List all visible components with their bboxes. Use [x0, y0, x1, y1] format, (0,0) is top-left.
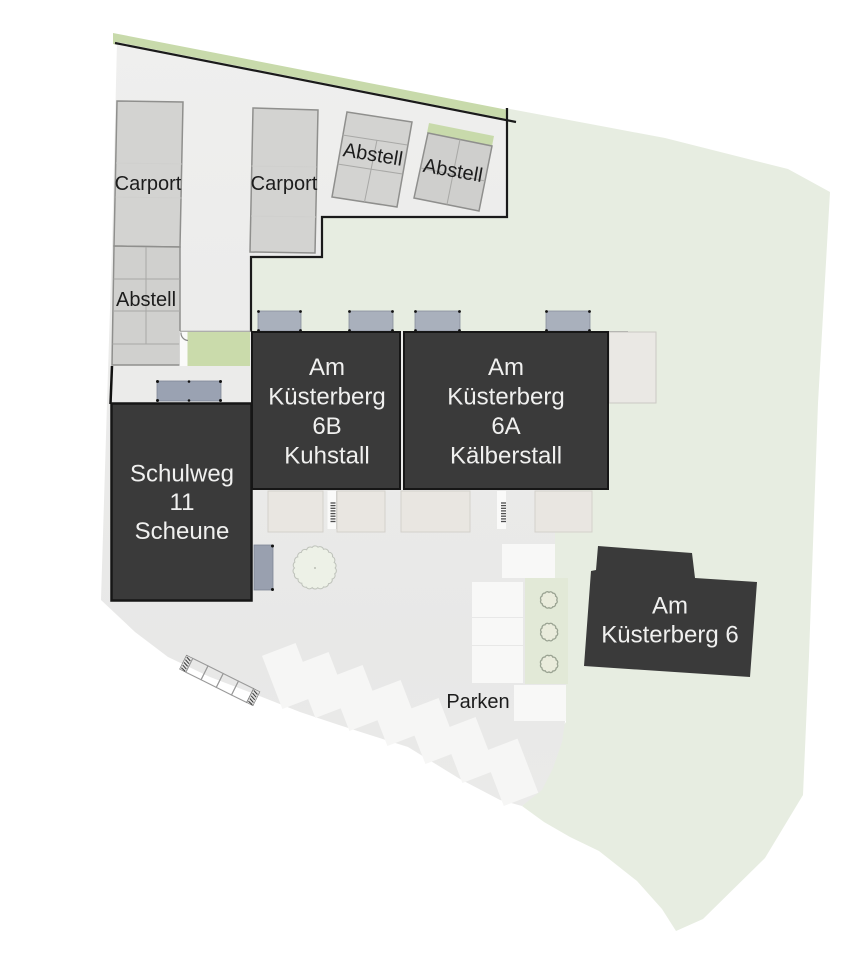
- svg-text:6A: 6A: [491, 413, 520, 440]
- svg-text:Abstell: Abstell: [116, 289, 176, 311]
- svg-text:Küsterberg 6: Küsterberg 6: [601, 622, 738, 649]
- svg-text:11: 11: [170, 489, 195, 516]
- svg-text:Am: Am: [488, 354, 524, 381]
- svg-text:Parken: Parken: [446, 691, 509, 713]
- svg-text:Am: Am: [309, 354, 345, 381]
- svg-text:Kälberstall: Kälberstall: [450, 443, 562, 470]
- svg-text:Schulweg: Schulweg: [130, 461, 234, 488]
- svg-text:Küsterberg: Küsterberg: [447, 384, 564, 411]
- svg-text:Küsterberg: Küsterberg: [268, 384, 385, 411]
- svg-text:Scheune: Scheune: [135, 518, 230, 545]
- svg-text:Am: Am: [652, 593, 688, 620]
- svg-text:Carport: Carport: [115, 173, 182, 195]
- svg-text:Carport: Carport: [251, 173, 318, 195]
- svg-text:6B: 6B: [312, 413, 341, 440]
- svg-text:Kuhstall: Kuhstall: [284, 443, 369, 470]
